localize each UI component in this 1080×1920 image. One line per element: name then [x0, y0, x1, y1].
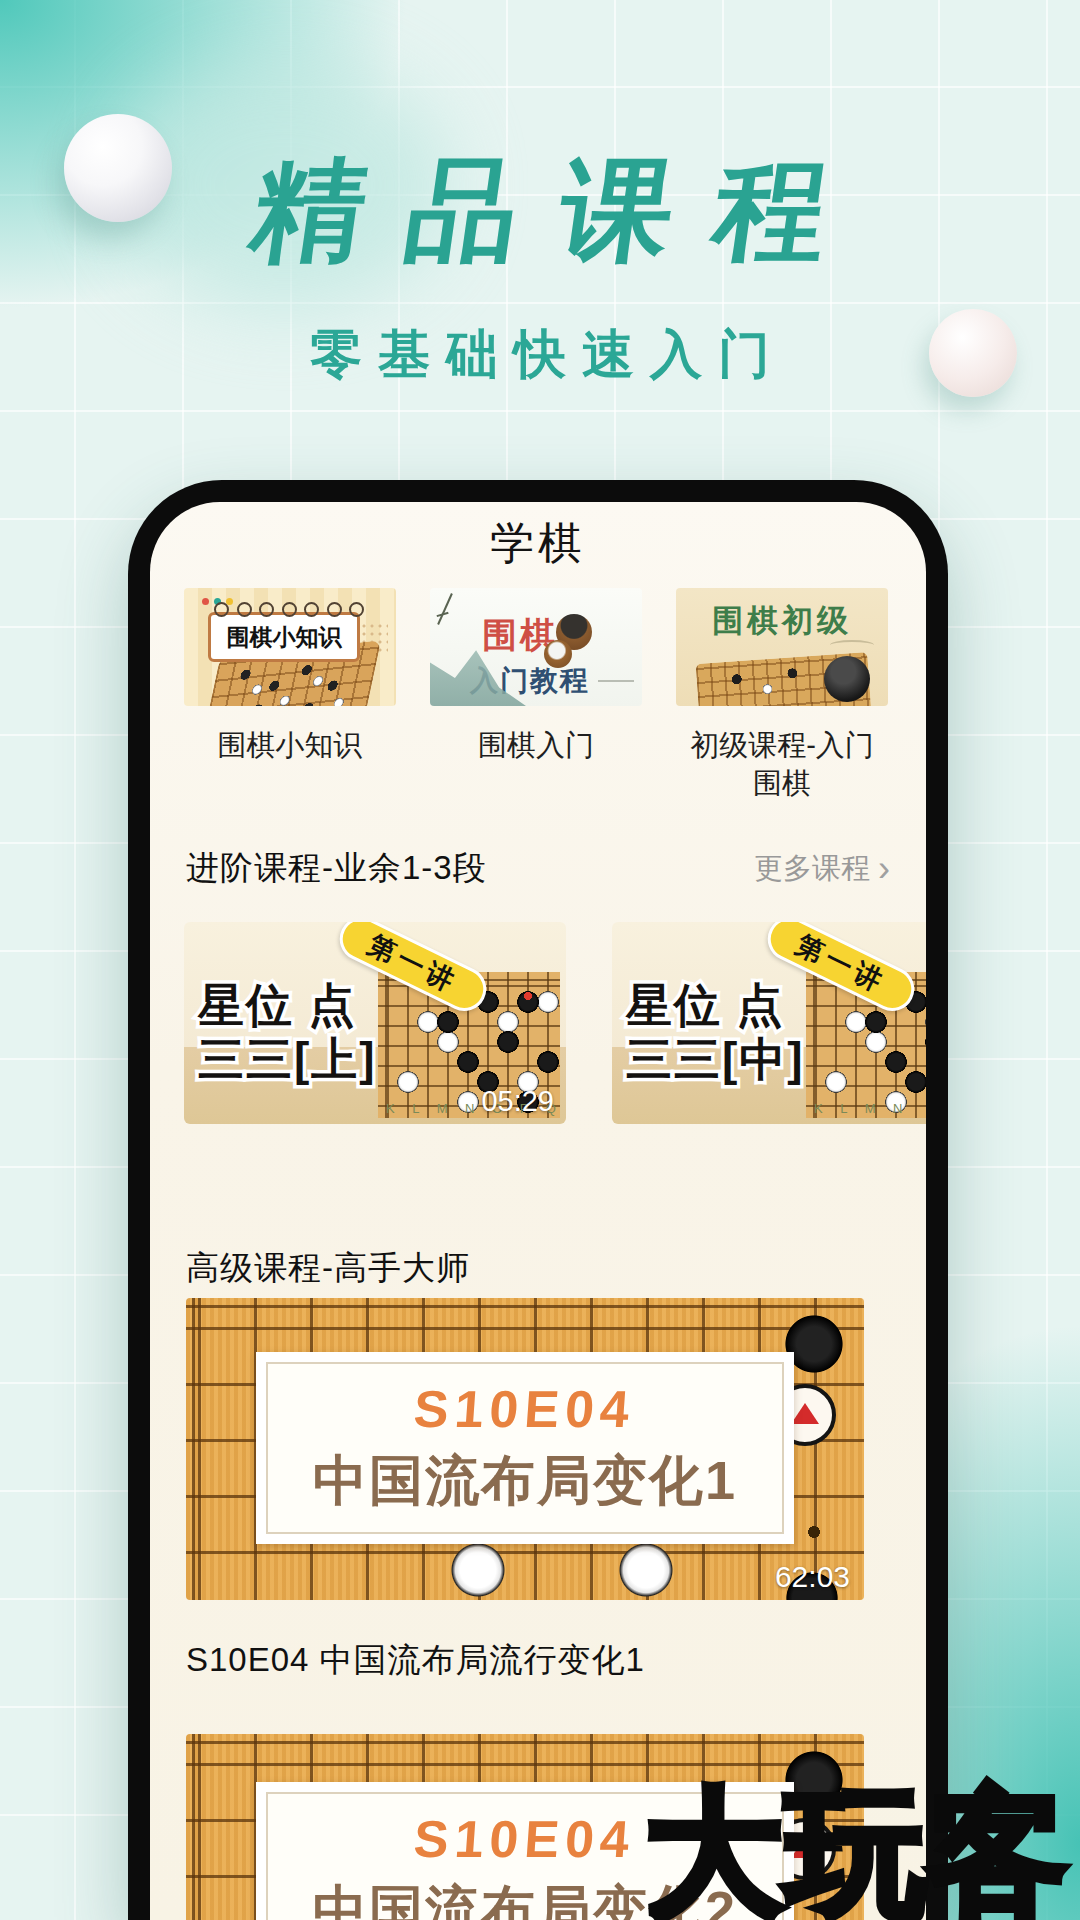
cloud-icon	[830, 640, 874, 650]
watermark: 大玩客	[645, 1762, 1071, 1920]
section-title: 进阶课程-业余1-3段	[186, 846, 487, 891]
branch-icon	[437, 593, 453, 625]
go-bowl-icon	[824, 656, 870, 702]
course-card-beginner[interactable]: 围棋初级 初级课程-入门围棋	[676, 588, 888, 802]
course-label: 围棋入门	[430, 726, 642, 764]
course-card-intro[interactable]: 围棋 入门教程 围棋入门	[430, 588, 642, 764]
notebook-banner: 围棋小知识	[208, 612, 360, 662]
phone-screen: 学棋 围棋小知识 围棋小知识 围棋 入门教程	[150, 502, 926, 1920]
section-header-advanced: 高级课程-高手大师	[186, 1246, 890, 1291]
banner-title: 中国流布局变化1	[313, 1445, 737, 1518]
course-label: 围棋小知识	[184, 726, 396, 764]
more-courses-label: 更多课程	[754, 849, 870, 889]
board-coordinates: K L M N	[814, 1101, 926, 1116]
lesson-banner: S10E04 中国流布局变化1	[256, 1352, 794, 1544]
spiral-rings-icon	[214, 602, 364, 617]
thumb-title: 围棋初级	[676, 600, 888, 642]
video-card-sansan-1[interactable]: K L M N O P Q R S 第一讲 星位 点 三三[上] 05:29	[184, 922, 566, 1124]
section-header-intermediate: 进阶课程-业余1-3段 更多课程 ›	[186, 846, 890, 891]
video-title-line2: 三三[中]	[626, 1032, 805, 1086]
triangle-icon	[791, 1403, 819, 1424]
banner-episode: S10E04	[412, 1379, 637, 1439]
banner-text: 围棋小知识	[227, 622, 342, 653]
duration-badge: 62:03	[775, 1560, 850, 1594]
video-row: K L M N O P Q R S 第一讲 星位 点 三三[上] 05:29 K…	[184, 922, 926, 1124]
more-courses-link[interactable]: 更多课程 ›	[754, 849, 890, 889]
video-title: 星位 点 三三[中]	[626, 978, 805, 1086]
video-title-line1: 星位 点	[626, 978, 805, 1032]
course-card-knowledge[interactable]: 围棋小知识 围棋小知识	[184, 588, 396, 764]
video-caption: S10E04 中国流布局流行变化1	[186, 1638, 645, 1683]
course-thumbnail: 围棋小知识	[184, 588, 396, 706]
course-thumbnail: 围棋初级	[676, 588, 888, 706]
banner-episode: S10E04	[412, 1809, 637, 1869]
phone-frame: 学棋 围棋小知识 围棋小知识 围棋 入门教程	[128, 480, 948, 1920]
video-title: 星位 点 三三[上]	[198, 978, 377, 1086]
video-title-line2: 三三[上]	[198, 1032, 377, 1086]
course-thumbnail: 围棋 入门教程	[430, 588, 642, 706]
course-label: 初级课程-入门围棋	[676, 726, 888, 802]
divider-line	[598, 680, 634, 682]
video-card-sansan-2[interactable]: K L M N 第一讲 星位 点 三三[中]	[612, 922, 926, 1124]
video-title-line1: 星位 点	[198, 978, 377, 1032]
dot-icon	[202, 598, 209, 605]
chevron-right-icon: ›	[878, 854, 890, 883]
app-header-title: 学棋	[150, 514, 926, 573]
video-card-s10e04-1[interactable]: S10E04 中国流布局变化1 62:03	[186, 1298, 864, 1600]
hero-subtitle: 零基础快速入门	[0, 320, 1080, 390]
duration-badge: 05:29	[481, 1085, 554, 1118]
hero-title: 精品课程	[0, 136, 1080, 287]
section-title: 高级课程-高手大师	[186, 1246, 470, 1291]
